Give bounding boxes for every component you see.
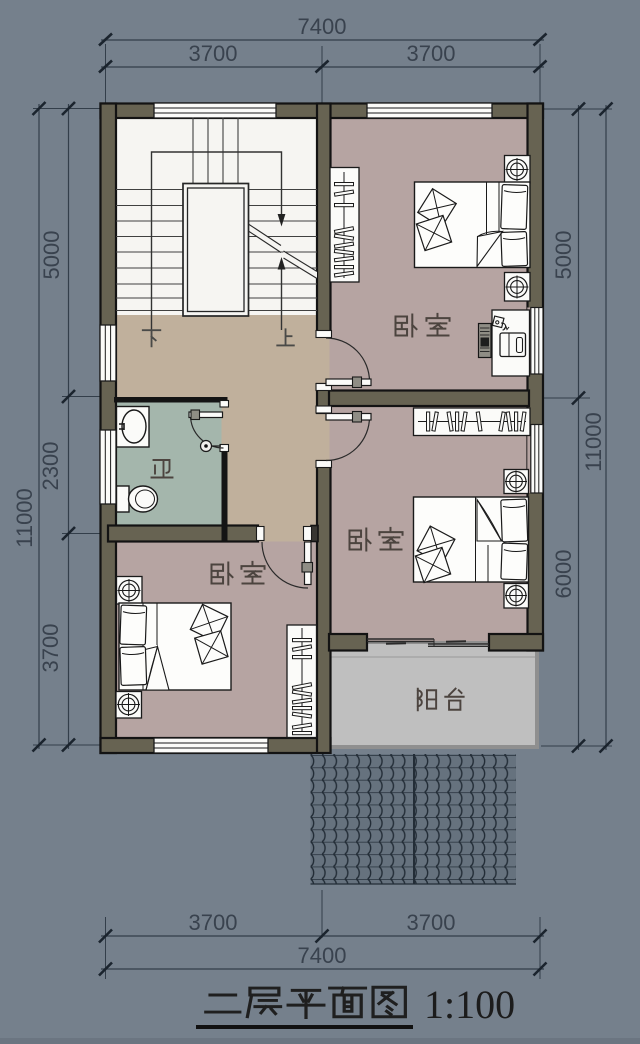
svg-text:3700: 3700 <box>189 910 238 935</box>
svg-text:5000: 5000 <box>39 231 64 280</box>
svg-text:3700: 3700 <box>38 624 63 673</box>
svg-text:7400: 7400 <box>298 14 347 39</box>
svg-text:2300: 2300 <box>38 442 63 491</box>
svg-text:3700: 3700 <box>407 41 456 66</box>
svg-text:11000: 11000 <box>581 412 606 472</box>
svg-text:3700: 3700 <box>407 910 456 935</box>
svg-text:1:100: 1:100 <box>424 982 515 1027</box>
svg-text:11000: 11000 <box>12 488 37 548</box>
svg-text:3700: 3700 <box>189 41 238 66</box>
svg-text:7400: 7400 <box>298 943 347 968</box>
svg-text:5000: 5000 <box>551 231 576 280</box>
svg-text:6000: 6000 <box>551 550 576 599</box>
